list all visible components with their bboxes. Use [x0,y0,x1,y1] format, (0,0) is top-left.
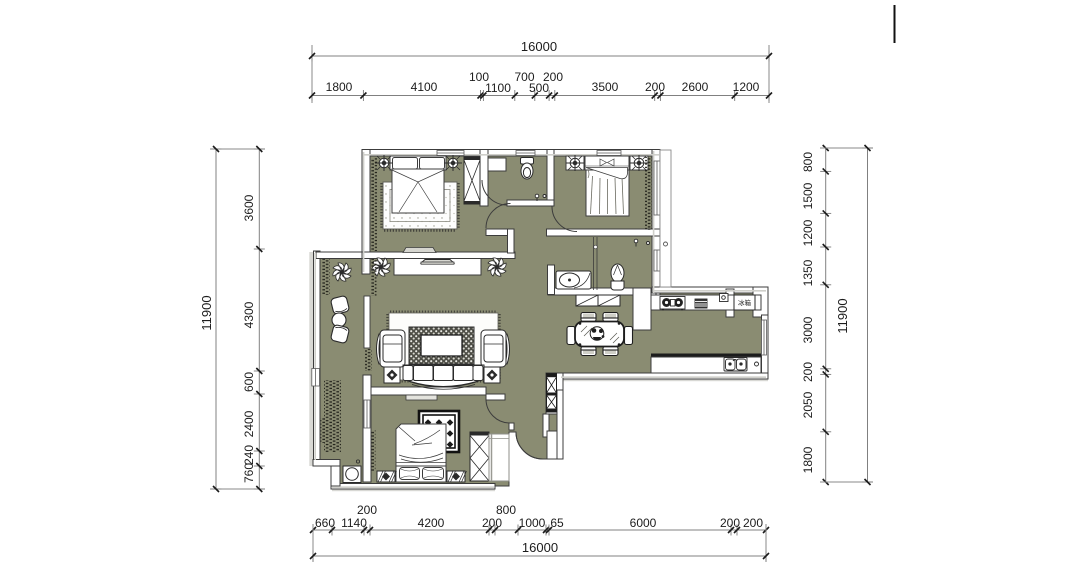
svg-text:240: 240 [242,445,256,465]
svg-text:65: 65 [550,516,564,530]
svg-text:1100: 1100 [485,81,511,95]
svg-text:200: 200 [801,362,815,382]
svg-text:冰箱: 冰箱 [738,298,752,307]
svg-text:4200: 4200 [418,516,445,530]
svg-text:4300: 4300 [242,301,256,328]
svg-text:600: 600 [242,372,256,392]
svg-text:800: 800 [496,503,516,517]
svg-text:760: 760 [242,463,256,483]
svg-text:1200: 1200 [801,219,815,246]
svg-text:16000: 16000 [522,540,558,555]
svg-text:200: 200 [543,70,563,84]
svg-text:1000: 1000 [519,516,546,530]
svg-text:11900: 11900 [835,298,850,333]
svg-text:200: 200 [645,80,665,94]
svg-text:11900: 11900 [199,295,214,330]
svg-text:1800: 1800 [801,446,815,473]
svg-text:3000: 3000 [801,316,815,343]
svg-text:200: 200 [357,503,377,517]
svg-text:16000: 16000 [521,39,557,54]
svg-text:3500: 3500 [592,80,619,94]
svg-text:1200: 1200 [733,80,760,94]
svg-text:2400: 2400 [242,410,256,437]
svg-text:6000: 6000 [630,516,657,530]
svg-text:2600: 2600 [682,80,709,94]
svg-text:200: 200 [482,516,502,530]
svg-text:1500: 1500 [801,182,815,209]
svg-text:800: 800 [801,152,815,172]
svg-text:660: 660 [315,516,335,530]
svg-text:1800: 1800 [326,80,353,94]
svg-text:2050: 2050 [801,391,815,418]
svg-text:1140: 1140 [341,516,367,530]
svg-text:1350: 1350 [801,259,815,286]
svg-text:4100: 4100 [411,80,438,94]
svg-text:200: 200 [743,516,763,530]
svg-text:3600: 3600 [242,194,256,221]
svg-text:200: 200 [720,516,740,530]
